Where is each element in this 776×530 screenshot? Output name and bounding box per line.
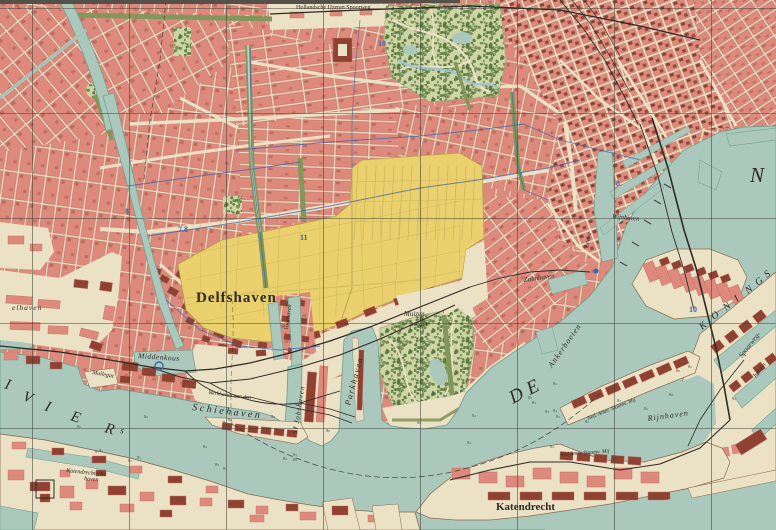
svg-text:10: 10	[689, 305, 697, 314]
svg-text:88: 88	[669, 392, 673, 397]
svg-text:elhaven: elhaven	[12, 303, 42, 312]
svg-text:N: N	[749, 163, 765, 187]
svg-text:85: 85	[308, 406, 312, 411]
svg-text:Hollandsche IJzeren Spoorweg: Hollandsche IJzeren Spoorweg	[296, 5, 371, 11]
svg-text:7.8: 7.8	[178, 225, 188, 234]
svg-text:83: 83	[293, 452, 297, 457]
svg-text:82: 82	[283, 456, 287, 461]
svg-text:82: 82	[688, 364, 692, 369]
svg-text:89: 89	[545, 409, 549, 414]
svg-text:polder: polder	[409, 320, 429, 328]
svg-text:8: 8	[125, 207, 129, 216]
svg-text:Delfshaven: Delfshaven	[196, 290, 277, 306]
svg-text:11: 11	[300, 233, 308, 242]
svg-text:85: 85	[553, 381, 557, 386]
svg-text:84: 84	[644, 406, 648, 411]
svg-text:Katendrecht: Katendrecht	[496, 501, 555, 513]
svg-text:82: 82	[128, 458, 132, 463]
svg-text:83: 83	[215, 462, 219, 467]
svg-text:83: 83	[532, 400, 536, 405]
svg-text:88: 88	[271, 414, 275, 419]
svg-text:84: 84	[203, 444, 207, 449]
svg-text:Muizen: Muizen	[403, 310, 425, 318]
svg-text:85: 85	[137, 455, 141, 460]
svg-text:82: 82	[550, 444, 554, 449]
svg-text:89: 89	[432, 391, 436, 396]
svg-text:88: 88	[466, 377, 470, 382]
svg-text:87: 87	[95, 449, 99, 454]
svg-text:82: 82	[732, 396, 736, 401]
svg-text:82: 82	[99, 448, 103, 453]
svg-text:8: 8	[616, 179, 620, 188]
svg-text:84: 84	[472, 413, 476, 418]
svg-text:89: 89	[144, 414, 148, 419]
svg-text:84: 84	[467, 440, 471, 445]
svg-text:82: 82	[461, 388, 465, 393]
svg-text:83: 83	[556, 414, 560, 419]
svg-text:86: 86	[676, 368, 680, 373]
svg-text:84: 84	[553, 408, 557, 413]
svg-text:89: 89	[293, 457, 297, 462]
svg-text:10: 10	[378, 39, 386, 48]
